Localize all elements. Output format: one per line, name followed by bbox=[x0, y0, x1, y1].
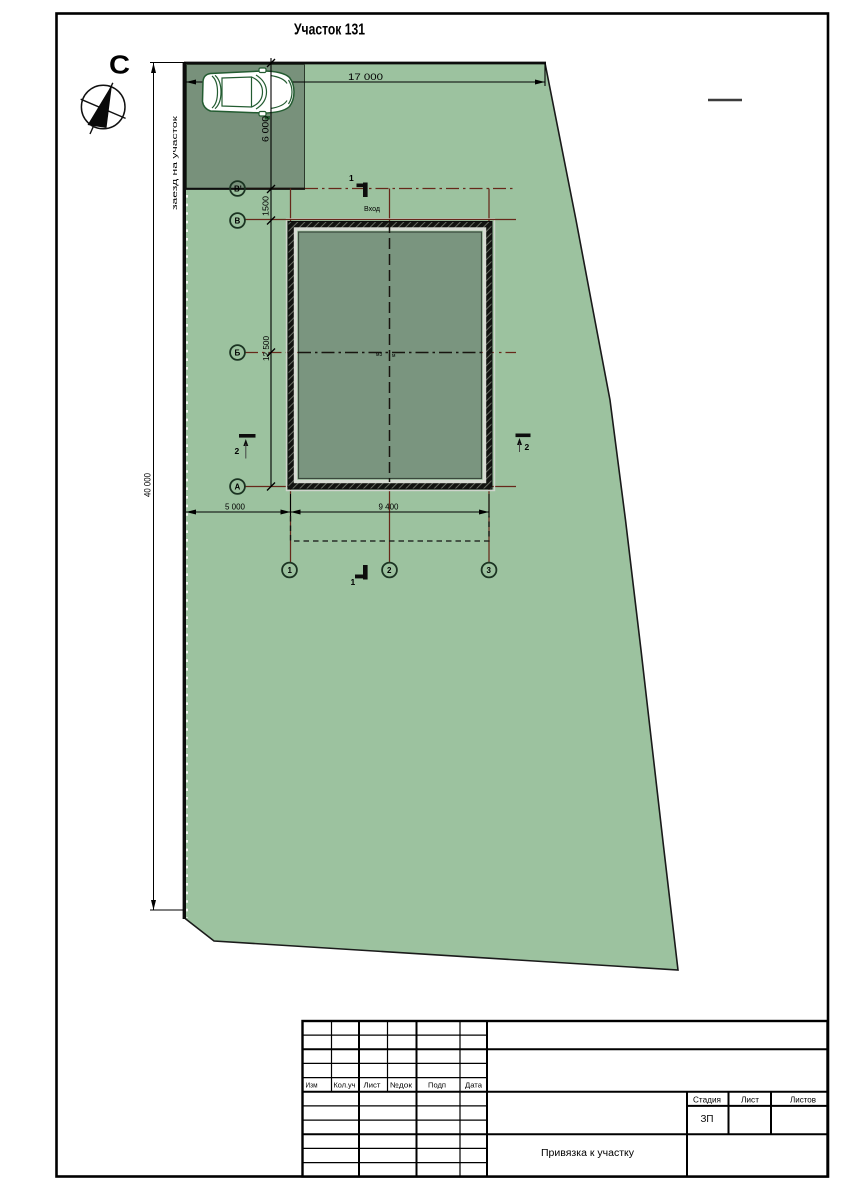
svg-text:Привязка к участку: Привязка к участку bbox=[541, 1148, 634, 1159]
svg-text:м: м bbox=[392, 353, 396, 359]
svg-text:Участок 131: Участок 131 bbox=[294, 22, 365, 39]
svg-text:В': В' bbox=[234, 185, 242, 194]
svg-text:12 500: 12 500 bbox=[262, 335, 271, 361]
svg-text:Б: Б bbox=[235, 349, 241, 358]
svg-text:Кол.уч: Кол.уч bbox=[334, 1081, 356, 1090]
svg-text:9 400: 9 400 bbox=[379, 503, 400, 512]
svg-text:3: 3 bbox=[487, 566, 492, 575]
svg-text:заезд на участок: заезд на участок bbox=[170, 115, 179, 210]
svg-text:В: В bbox=[235, 217, 241, 226]
svg-text:А: А bbox=[235, 483, 241, 492]
svg-text:Вход: Вход bbox=[364, 204, 381, 213]
svg-text:1: 1 bbox=[288, 566, 293, 575]
svg-text:2: 2 bbox=[235, 446, 240, 456]
svg-text:6 000: 6 000 bbox=[261, 116, 271, 142]
svg-text:№док: №док bbox=[390, 1081, 413, 1090]
svg-text:Изм: Изм bbox=[306, 1081, 318, 1090]
svg-text:Листов: Листов bbox=[790, 1095, 816, 1105]
svg-text:Дата: Дата bbox=[465, 1081, 483, 1090]
svg-text:17 000: 17 000 bbox=[348, 72, 383, 83]
svg-text:5 000: 5 000 bbox=[225, 503, 246, 512]
svg-text:1: 1 bbox=[349, 173, 354, 183]
svg-text:С: С bbox=[109, 50, 130, 80]
svg-text:Лист: Лист bbox=[364, 1081, 382, 1090]
svg-text:Стадия: Стадия bbox=[693, 1095, 721, 1105]
svg-text:Лист: Лист bbox=[741, 1095, 759, 1105]
svg-text:Подп: Подп bbox=[428, 1081, 446, 1090]
svg-text:2: 2 bbox=[525, 442, 530, 452]
svg-text:1500: 1500 bbox=[262, 195, 271, 216]
svg-text:1: 1 bbox=[351, 577, 356, 587]
svg-text:ЗП: ЗП bbox=[701, 1114, 714, 1125]
svg-text:40 000: 40 000 bbox=[143, 473, 153, 497]
svg-text:м3: м3 bbox=[376, 352, 382, 358]
svg-text:2: 2 bbox=[387, 566, 392, 575]
